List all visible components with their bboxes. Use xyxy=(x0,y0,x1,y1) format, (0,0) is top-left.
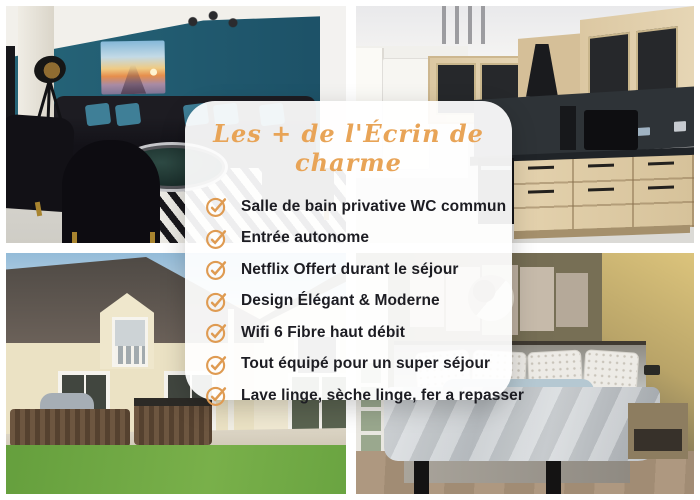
amenity-item: Entrée autonome xyxy=(205,223,494,255)
amenity-item: Tout équipé pour un super séjour xyxy=(205,349,494,381)
check-circle-icon xyxy=(205,195,228,218)
power-outlet xyxy=(674,121,686,132)
check-circle-icon xyxy=(205,258,228,281)
chrome-chandelier xyxy=(442,6,494,44)
sun-motif xyxy=(150,69,157,76)
listing-collage: Les + de l'Écrin de charme Salle de bain… xyxy=(0,0,700,500)
gold-chair-foot xyxy=(150,232,155,243)
amenity-label: Lave linge, sèche linge, fer a repasser xyxy=(241,387,524,405)
amenity-label: Netflix Offert durant le séjour xyxy=(241,261,459,279)
balcony-railing xyxy=(115,346,145,364)
amenity-item: Netflix Offert durant le séjour xyxy=(205,254,494,286)
amenity-label: Tout équipé pour un super séjour xyxy=(241,355,490,373)
nightstand xyxy=(628,403,688,459)
wall-sconce xyxy=(644,365,660,375)
check-circle-icon xyxy=(205,353,228,376)
coffee-machine xyxy=(560,106,576,150)
wall-art-panel xyxy=(556,273,588,327)
pendant-lights xyxy=(182,6,242,30)
check-circle-icon xyxy=(205,227,228,250)
glass-door xyxy=(636,26,678,97)
amenity-item: Wifi 6 Fibre haut débit xyxy=(205,317,494,349)
black-armchair xyxy=(62,140,160,243)
check-circle-icon xyxy=(205,321,228,344)
check-circle-icon xyxy=(205,290,228,313)
amenities-card: Les + de l'Écrin de charme Salle de bain… xyxy=(185,101,512,400)
amenity-item: Salle de bain privative WC commun xyxy=(205,191,494,223)
drawer-handle xyxy=(528,190,554,194)
gold-chair-foot xyxy=(72,232,77,243)
table-top xyxy=(134,398,212,406)
amenity-label: Entrée autonome xyxy=(241,229,369,247)
rattan-furniture xyxy=(10,409,130,447)
drawer-unit xyxy=(514,155,694,233)
drawer-handle xyxy=(588,164,614,168)
microwave xyxy=(584,110,638,150)
amenity-item: Lave linge, sèche linge, fer a repasser xyxy=(205,380,494,412)
dock-motif xyxy=(120,65,146,95)
drawer-handle xyxy=(528,166,554,170)
rattan-table xyxy=(134,403,212,445)
drawer-handle xyxy=(588,188,614,192)
drawer-handle xyxy=(648,162,674,166)
wall-art-panel xyxy=(520,267,554,331)
teal-cushion xyxy=(115,103,141,127)
drawer-handle xyxy=(648,186,674,190)
amenity-label: Design Élégant & Moderne xyxy=(241,292,440,310)
nightstand-drawer xyxy=(634,429,682,451)
teal-cushion xyxy=(85,103,111,127)
dormer-window xyxy=(112,317,148,367)
check-circle-icon xyxy=(205,384,228,407)
amenities-list: Salle de bain privative WC commun Entrée… xyxy=(203,191,494,412)
sunset-dock-painting xyxy=(101,40,166,94)
amenity-item: Design Élégant & Moderne xyxy=(205,286,494,318)
amenity-label: Wifi 6 Fibre haut débit xyxy=(241,324,405,342)
amenity-label: Salle de bain privative WC commun xyxy=(241,198,506,216)
card-title: Les + de l'Écrin de charme xyxy=(203,119,494,177)
garden-lawn xyxy=(6,445,346,494)
